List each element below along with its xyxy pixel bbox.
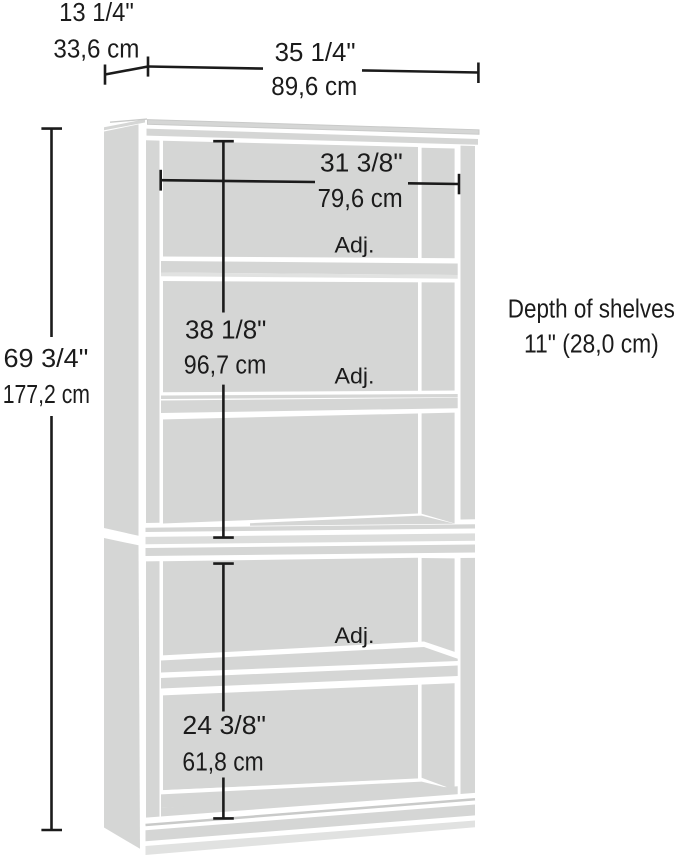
svg-text:13 1/4": 13 1/4" <box>59 0 134 27</box>
svg-text:Adj.: Adj. <box>335 233 375 258</box>
svg-text:24 3/8": 24 3/8" <box>182 712 266 740</box>
svg-text:33,6 cm: 33,6 cm <box>53 35 139 63</box>
svg-text:Adj.: Adj. <box>335 623 375 648</box>
svg-text:79,6 cm: 79,6 cm <box>318 185 403 213</box>
svg-text:Adj.: Adj. <box>335 364 375 389</box>
svg-text:69 3/4": 69 3/4" <box>4 345 89 373</box>
svg-text:89,6 cm: 89,6 cm <box>271 73 357 101</box>
svg-text:35 1/4": 35 1/4" <box>275 39 356 67</box>
svg-text:11" (28,0 cm): 11" (28,0 cm) <box>524 331 659 359</box>
svg-text:31 3/8": 31 3/8" <box>320 150 403 178</box>
svg-text:61,8 cm: 61,8 cm <box>182 748 263 776</box>
svg-text:96,7 cm: 96,7 cm <box>184 351 267 379</box>
svg-text:Depth of shelves: Depth of shelves <box>508 296 675 324</box>
svg-text:177,2 cm: 177,2 cm <box>3 381 90 409</box>
svg-text:38 1/8": 38 1/8" <box>185 317 266 345</box>
